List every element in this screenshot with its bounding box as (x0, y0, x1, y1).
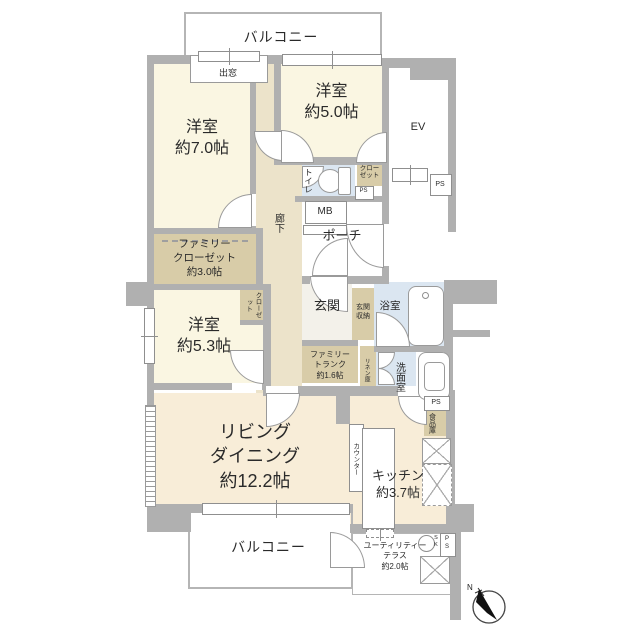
label-closet5: クロー ゼット (357, 165, 382, 180)
label-ps-bottom: P S (441, 536, 453, 552)
window (282, 54, 382, 66)
wall (452, 330, 490, 337)
compass-icon: N (464, 580, 512, 628)
toilet-tank (338, 167, 351, 195)
label-toilet: トイレ (302, 167, 313, 195)
wall (336, 390, 350, 424)
wall (302, 340, 358, 346)
wall (448, 58, 456, 232)
elevator-door (392, 168, 428, 182)
label-meter-box: MB (305, 205, 345, 218)
wall (153, 228, 256, 234)
label-ps-ev: PS (431, 180, 449, 189)
floor-plan: バルコニー 出窓 洋室 約7.0帖 洋室 約5.0帖 EV PS トイレ クロー… (0, 0, 640, 640)
wall (448, 280, 497, 304)
window-balcony-door (202, 503, 350, 515)
label-genkan-storage: 玄関 収納 (352, 304, 374, 322)
label-family-closet: ファミリー クローゼット 約3.0帖 (153, 237, 256, 280)
wall (446, 504, 474, 532)
terrace-door (366, 529, 394, 538)
label-bath: 浴室 (372, 300, 408, 314)
door-gap (232, 383, 262, 390)
wall (126, 282, 152, 306)
label-bedroom7: 洋室 約7.0帖 (154, 118, 250, 160)
appliance-space (422, 438, 451, 464)
label-ps-toilet: PS (355, 188, 372, 196)
label-porch: ポーチ (302, 228, 382, 245)
label-washroom: 洗面室 (392, 356, 406, 398)
wall (256, 228, 263, 284)
label-linen: リネン庫 (362, 350, 370, 390)
label-pantry: 食品庫 (427, 411, 436, 435)
wall (263, 284, 271, 390)
window (198, 51, 260, 62)
label-family-trunk: ファミリー トランク 約1.6帖 (302, 350, 358, 381)
label-elevator: EV (388, 120, 448, 134)
wall (382, 266, 389, 284)
label-corridor: 廊下 (271, 206, 285, 240)
compass-north-letter: N (467, 583, 473, 592)
label-kitchen: キッチン 約3.7帖 (350, 468, 446, 502)
label-ps-kitchen: PS (424, 398, 448, 407)
wall (382, 58, 456, 68)
label-balcony-bottom: バルコニー (188, 538, 349, 556)
label-bedroom53: 洋室 約5.3帖 (154, 316, 254, 358)
label-balcony-top: バルコニー (184, 28, 378, 46)
label-utility-terrace: ユーティリティー テラス 約2.0帖 (352, 541, 438, 572)
label-genkan: 玄関 (302, 298, 352, 315)
label-bedroom5: 洋室 約5.0帖 (281, 82, 382, 124)
hatched-wall (145, 405, 156, 507)
label-living-dining: リビング ダイニング 約12.2帖 (165, 420, 345, 493)
washbasin-bowl (424, 362, 445, 391)
label-bay-window: 出窓 (190, 68, 266, 80)
bathtub-drain (422, 292, 429, 299)
